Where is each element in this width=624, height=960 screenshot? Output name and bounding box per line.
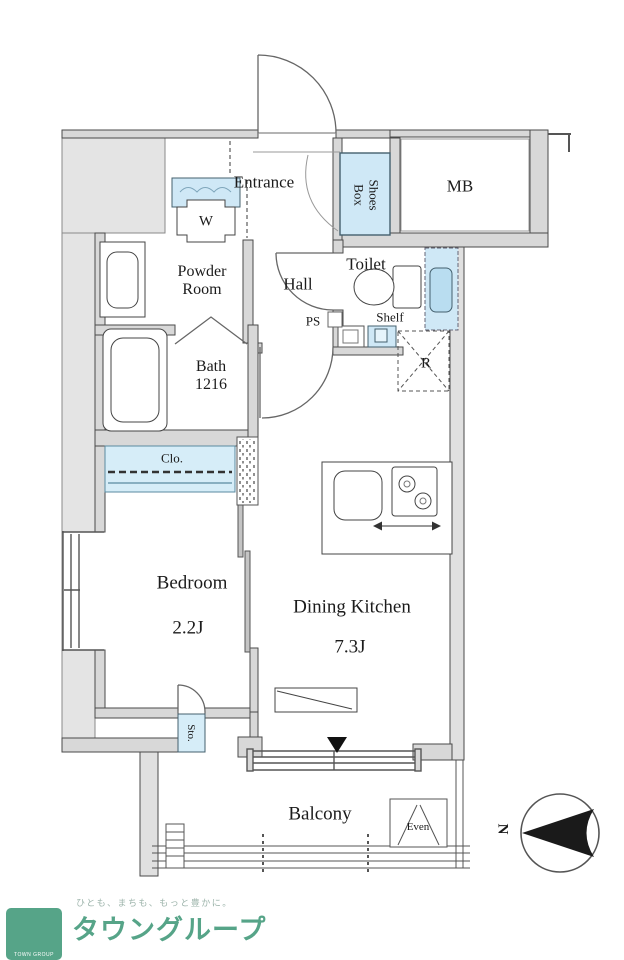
compass-north-label: N: [494, 824, 511, 835]
balcony-partition: [263, 834, 368, 876]
kitchen-counter: [322, 462, 452, 554]
kitchen-sink: [334, 471, 382, 520]
floorplan-page: Entrance Box Shoes MB Toilet Shelf PS Ha…: [0, 0, 624, 960]
vanity: [100, 242, 145, 317]
compass-needle: [522, 809, 594, 857]
duct-shaft: [237, 437, 258, 505]
label-powder-room: Powder Room: [178, 263, 227, 299]
stove: [392, 467, 437, 516]
company-name: タウングループ: [72, 908, 266, 947]
entrance-door: [258, 55, 336, 133]
bathtub: [103, 329, 167, 431]
storage-door: [178, 685, 205, 712]
label-bedroom: Bedroom: [157, 572, 228, 593]
logo-caption: TOWN GROUP: [14, 952, 54, 958]
label-toilet: Toilet: [346, 254, 385, 273]
label-washer: W: [199, 214, 213, 231]
bedroom-window: [62, 531, 104, 651]
ps-shaft: [328, 312, 342, 327]
label-evac-hatch: Even: [407, 821, 430, 833]
label-hall: Hall: [283, 274, 312, 293]
label-bedroom-size: 2.2J: [172, 617, 203, 638]
label-dining-kitchen-size: 7.3J: [334, 636, 365, 657]
balcony-railing: [152, 846, 470, 868]
label-entrance: Entrance: [234, 172, 294, 191]
structural-block: [62, 133, 165, 233]
sliding-door: [238, 505, 250, 652]
compass: [521, 794, 599, 872]
wall-stub: [548, 134, 571, 152]
counter-box: [338, 326, 364, 347]
label-bath: Bath 1216: [195, 358, 227, 394]
label-mb: MB: [447, 176, 473, 195]
label-storage: Sto.: [185, 724, 197, 741]
hall-dk-door: [260, 347, 333, 418]
label-balcony: Balcony: [288, 803, 351, 824]
balcony-window: [247, 749, 421, 771]
label-closet: Clo.: [161, 452, 183, 467]
label-ps: PS: [306, 315, 320, 330]
town-group-logo: TOWN GROUP: [6, 908, 62, 960]
label-fridge: R: [421, 356, 431, 373]
label-dining-kitchen: Dining Kitchen: [293, 596, 411, 617]
balcony-step: [166, 824, 184, 868]
bath-folding-door: [175, 317, 247, 344]
label-shelf: Shelf: [376, 311, 403, 326]
label-shoes-box: Box Shoes: [351, 179, 380, 210]
dk-shelf: [275, 688, 357, 712]
